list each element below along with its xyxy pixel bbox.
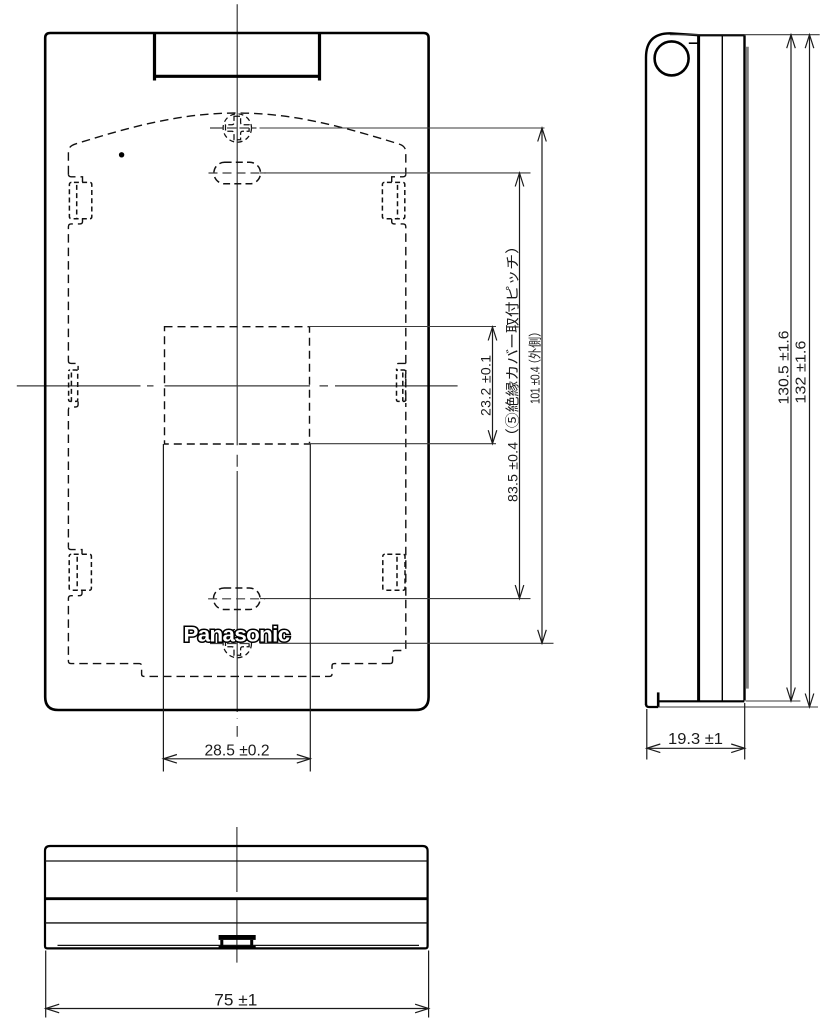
svg-text:101 ±0.4: 101 ±0.4	[528, 366, 542, 404]
svg-text:19.3 ±1: 19.3 ±1	[668, 731, 723, 748]
svg-text:83.5 ±0.4: 83.5 ±0.4	[505, 442, 521, 502]
svg-text:28.5 ±0.2: 28.5 ±0.2	[205, 743, 270, 760]
svg-text:132 ±1.6: 132 ±1.6	[793, 341, 810, 404]
svg-text:（外側）: （外側）	[528, 326, 543, 370]
svg-text:23.2 ±0.1: 23.2 ±0.1	[478, 355, 494, 416]
svg-text:75 ±1: 75 ±1	[214, 991, 257, 1010]
svg-text:（⑤絶縁カバー取付ピッチ）: （⑤絶縁カバー取付ピッチ）	[505, 238, 521, 444]
svg-text:130.5 ±1.6: 130.5 ±1.6	[776, 331, 793, 405]
